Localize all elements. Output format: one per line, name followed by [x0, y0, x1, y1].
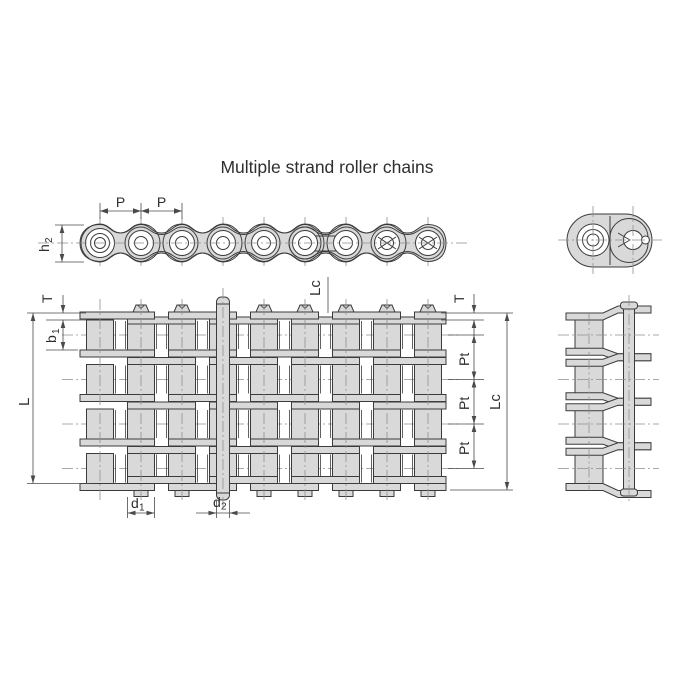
dimension-pitch: P P [100, 194, 182, 219]
dim-label-d2-sub: 2 [221, 502, 227, 513]
technical-drawing-page: Multiple strand roller chains [0, 0, 679, 679]
dim-label-t-right: T [451, 294, 467, 303]
dim-label-pt-2: Pt [456, 397, 472, 410]
dim-label-l: L [16, 398, 33, 406]
dim-label-d1-base: d [131, 495, 139, 511]
dim-label-t-left: T [39, 294, 55, 303]
dim-label-pt-3: Pt [456, 442, 472, 455]
dim-label-d1-sub: 1 [139, 503, 145, 514]
dim-label-lc-top: Lc [307, 280, 324, 296]
dim-label-pt-1: Pt [456, 353, 472, 366]
dimension-pt: Pt Pt Pt [448, 335, 484, 469]
dim-label-b1-sub: 1 [51, 328, 62, 334]
dimension-b1: b 1 [43, 328, 78, 350]
dimension-h2: h 2 [36, 225, 84, 262]
dim-label-p-1: P [116, 194, 125, 210]
dim-label-p-2: P [157, 194, 166, 210]
plan-view-multistrand: T b 1 L Lc [16, 277, 513, 518]
dimension-t-right: T [441, 294, 513, 337]
dim-label-h2-sub: 2 [44, 237, 55, 243]
dim-label-h2-base: h [36, 244, 52, 252]
dim-label-lc-right: Lc [487, 394, 504, 410]
diagram-canvas: Multiple strand roller chains [0, 0, 679, 679]
end-view-link [558, 206, 662, 274]
dim-label-d2-base: d [213, 494, 221, 510]
elevation-view-multistrand [558, 295, 659, 504]
side-view-chain: P P h 2 [36, 194, 468, 269]
dim-label-b1-base: b [43, 335, 59, 343]
diagram-title: Multiple strand roller chains [220, 157, 433, 177]
